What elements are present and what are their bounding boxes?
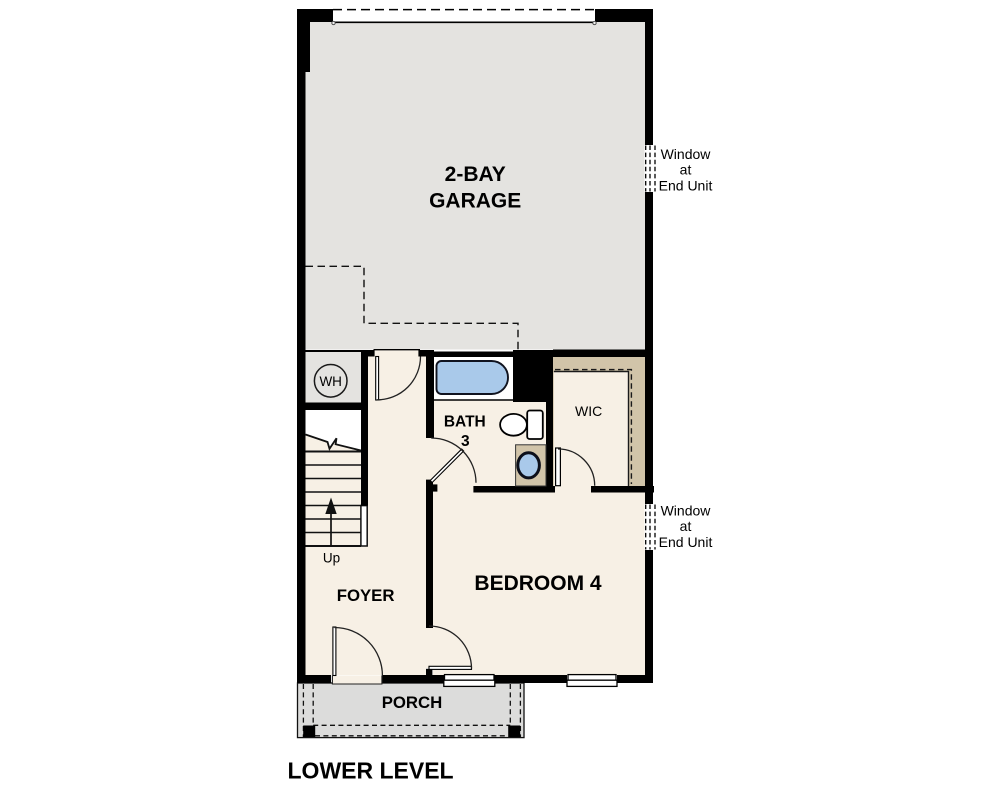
svg-text:3: 3 xyxy=(461,433,470,450)
svg-text:End Unit: End Unit xyxy=(659,534,713,550)
svg-text:WIC: WIC xyxy=(575,403,602,419)
svg-text:at: at xyxy=(680,518,692,534)
svg-text:Window: Window xyxy=(661,146,712,162)
svg-text:Window: Window xyxy=(661,503,712,519)
svg-text:BEDROOM 4: BEDROOM 4 xyxy=(474,572,602,595)
svg-text:PORCH: PORCH xyxy=(382,693,443,712)
svg-text:FOYER: FOYER xyxy=(337,586,395,605)
svg-text:End Unit: End Unit xyxy=(659,177,713,193)
svg-text:WH: WH xyxy=(319,374,342,389)
svg-text:BATH: BATH xyxy=(444,414,486,431)
svg-text:2-BAY: 2-BAY xyxy=(445,163,506,186)
svg-text:GARAGE: GARAGE xyxy=(429,190,521,213)
svg-text:LOWER LEVEL: LOWER LEVEL xyxy=(288,758,454,784)
svg-text:at: at xyxy=(680,161,692,177)
svg-text:Up: Up xyxy=(323,551,340,566)
